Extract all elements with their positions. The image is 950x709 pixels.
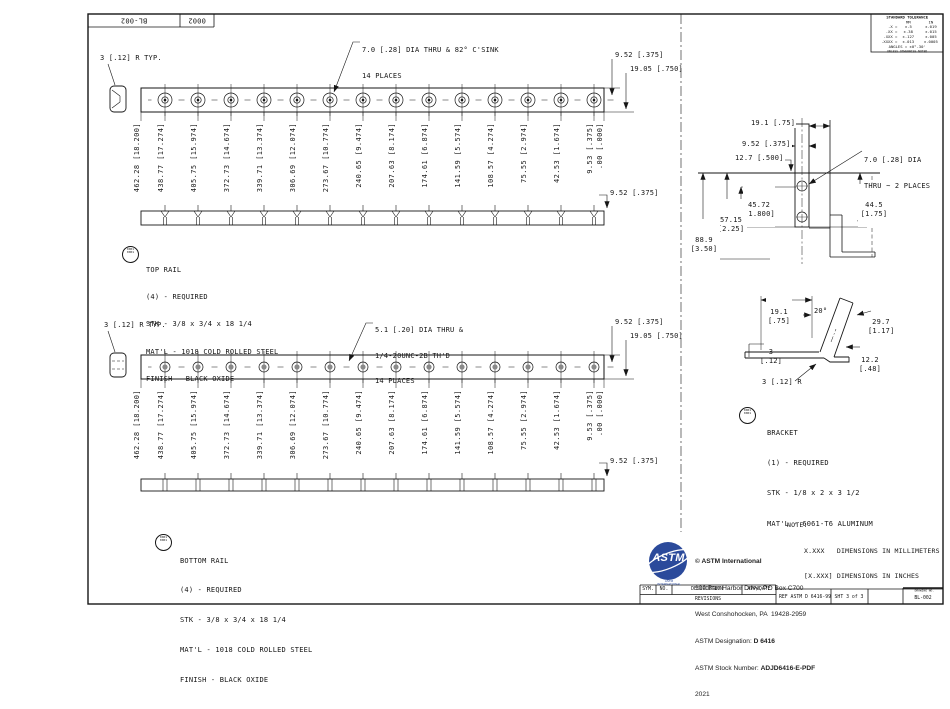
corner-zone-label: 0002 (181, 16, 213, 25)
top-rail-radius-callout: 3 [.12] R TYP. (100, 54, 162, 63)
bottom-rail-title: BOTTOM RAIL (180, 556, 312, 566)
bottom-rail-side-dim: 9.52 [.375] (610, 457, 659, 466)
bottom-rail-radius-callout: 3 [.12] R TYP. (104, 321, 166, 330)
ordinate-dimension-label: 438.77 [17.274] (157, 390, 165, 459)
ordinate-dimension-label: 240.65 [9.474] (355, 123, 363, 188)
ordinate-dimension-label: 240.65 [9.474] (355, 390, 363, 455)
ordinate-dimension-label: 174.61 [6.874] (421, 390, 429, 455)
ordinate-dimension-label: 141.59 [5.574] (454, 123, 462, 188)
tolerance-note: UNLESS OTHERWISE NOTED (872, 50, 942, 55)
bracket-title: BRACKET (767, 428, 873, 438)
titleblock-description: DESCRIPTION (683, 586, 731, 591)
ordinate-dimension-label: 339.71 [13.374] (256, 390, 264, 459)
titleblock-drawing-no: BL-002 (911, 595, 935, 600)
titleblock-app-date: APP/DATE (747, 586, 771, 591)
ordinate-dimension-label: 372.73 [14.674] (223, 123, 231, 192)
bracket-dim-127: 12.7 [.500] (734, 154, 785, 163)
corner-drawing-no: BL-002 (89, 16, 179, 25)
bracket-side-dim-297: 29.7[1.17] (868, 301, 894, 344)
titleblock-sheet: SHT 3 of 3 (825, 594, 873, 599)
top-rail-side-dim: 9.52 [.375] (610, 189, 659, 198)
ordinate-dimension-label: 9.53 [.375] (586, 123, 594, 174)
ordinate-dimension-label: 108.57 [4.274] (487, 390, 495, 455)
titleblock-drawing-no-label: DRAWING NO. (915, 589, 932, 592)
ordinate-dimension-label: 462.28 [18.200] (133, 123, 141, 192)
ordinate-dimension-label: 405.75 [15.974] (190, 123, 198, 192)
astm-copyright: © ASTM International (695, 558, 815, 567)
bottom-rail-balloon: 00010001 (155, 534, 172, 551)
ordinate-dimension-label: 306.69 [12.074] (289, 390, 297, 459)
bracket-hole-callout: 7.0 [.28] DIA THRU ~ 2 PLACES (864, 139, 930, 199)
titleblock-revisions: REVISIONS (684, 596, 732, 601)
titleblock-ref: REF ASTM D 6416-99 (779, 594, 827, 599)
bracket-side-angle: 20° (814, 307, 827, 316)
ordinate-dimension-label: 462.28 [18.200] (133, 390, 141, 459)
ordinate-dimension-label: 273.67 [10.774] (322, 123, 330, 192)
ordinate-dimension-label: 438.77 [17.274] (157, 123, 165, 192)
bracket-side-dim-19: 19.1[.75] (766, 291, 792, 334)
bracket-balloon: 00010001 (739, 407, 756, 424)
astm-logo: ASTM (650, 552, 687, 564)
ordinate-dimension-label: 42.53 [1.674] (553, 123, 561, 183)
top-rail-balloon: 00010001 (122, 246, 139, 263)
ordinate-dimension-label: 372.73 [14.674] (223, 390, 231, 459)
top-rail-title: TOP RAIL (146, 265, 278, 275)
bracket-side-dim-122: 12.2[.48] (858, 339, 882, 382)
titleblock-no: NO. (652, 586, 676, 591)
top-rail-ordinate-labels: 462.28 [18.200]438.77 [17.274]405.75 [15… (0, 123, 950, 208)
ordinate-dimension-label: 141.59 [5.574] (454, 390, 462, 455)
ordinate-dimension-label: 207.63 [8.174] (388, 123, 396, 188)
bottom-rail-dim-offset: 9.52 [.375] (615, 318, 664, 327)
bracket-side-dim-3: 3[.12] (760, 331, 782, 374)
top-rail-spec: TOP RAIL (4) - REQUIRED STK - 3/8 x 3/4 … (146, 248, 278, 393)
ordinate-dimension-label: 108.57 [4.274] (487, 123, 495, 188)
tolerance-table: STANDARD TOLERANCE MMIN .X =±.5±.019 .XX… (872, 15, 942, 55)
ordinate-dimension-label: .00 [.000] (596, 123, 604, 169)
astm-designation: D 6416 (754, 638, 775, 645)
top-rail-dim-offset: 9.52 [.375] (615, 51, 664, 60)
bracket-side-radius: 3 [.12] R (762, 378, 802, 387)
bracket-dim-19: 19.1 [.75] (750, 119, 796, 128)
bottom-rail-dim-width: 19.05 [.750] (630, 332, 683, 341)
bracket-dim-889: 88.9[3.50] (688, 219, 720, 262)
ordinate-dimension-label: 75.55 [2.974] (520, 390, 528, 450)
ordinate-dimension-label: 207.63 [8.174] (388, 390, 396, 455)
ordinate-dimension-label: 405.75 [15.974] (190, 390, 198, 459)
ordinate-dimension-label: 306.69 [12.074] (289, 123, 297, 192)
bracket-dim-4572: 45.72[1.800] (743, 184, 775, 227)
ordinate-dimension-label: 339.71 [13.374] (256, 123, 264, 192)
top-rail-hole-callout: 7.0 [.28] DIA THRU & 82° C'SINK 14 PLACE… (362, 29, 499, 89)
ordinate-dimension-label: 42.53 [1.674] (553, 390, 561, 450)
top-rail-dim-width: 19.05 [.750] (630, 65, 683, 74)
bottom-rail-hole-callout: 5.1 [.20] DIA THRU & 1/4-20UNC-2B TH'D 1… (375, 309, 463, 394)
bottom-rail-spec: BOTTOM RAIL (4) - REQUIRED STK - 3/8 x 3… (180, 536, 312, 695)
astm-info-block: © ASTM International 100 Barr Harbor Dri… (695, 540, 815, 709)
ordinate-dimension-label: 174.61 [6.874] (421, 123, 429, 188)
astm-year: 2021 (695, 691, 815, 700)
ordinate-dimension-label: 9.53 [.375] (586, 390, 594, 441)
astm-stock-number: ADJD6416-E-PDF (761, 665, 816, 672)
ordinate-dimension-label: 75.55 [2.974] (520, 123, 528, 183)
bracket-dim-952: 9.52 [.375] (741, 140, 792, 149)
ordinate-dimension-label: .00 [.000] (596, 390, 604, 436)
ordinate-dimension-label: 273.67 [10.774] (322, 390, 330, 459)
astm-address-2: West Conshohocken, PA 19428-2959 (695, 611, 815, 620)
